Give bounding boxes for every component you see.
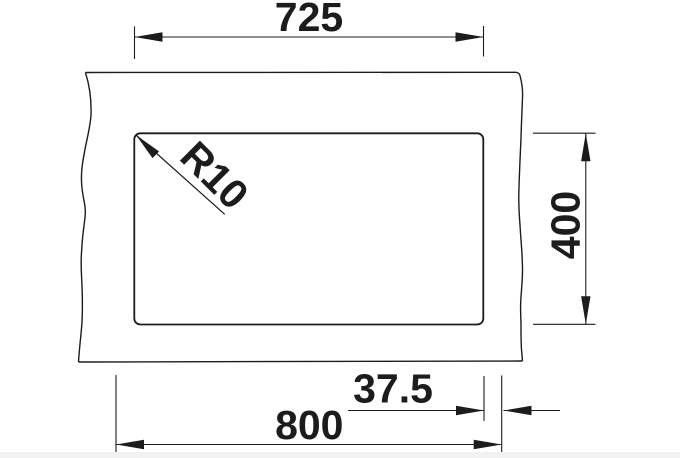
svg-text:725: 725	[275, 0, 343, 40]
svg-text:37.5: 37.5	[353, 366, 433, 412]
svg-text:800: 800	[275, 402, 343, 448]
svg-text:400: 400	[543, 191, 589, 259]
svg-text:R10: R10	[172, 132, 258, 218]
